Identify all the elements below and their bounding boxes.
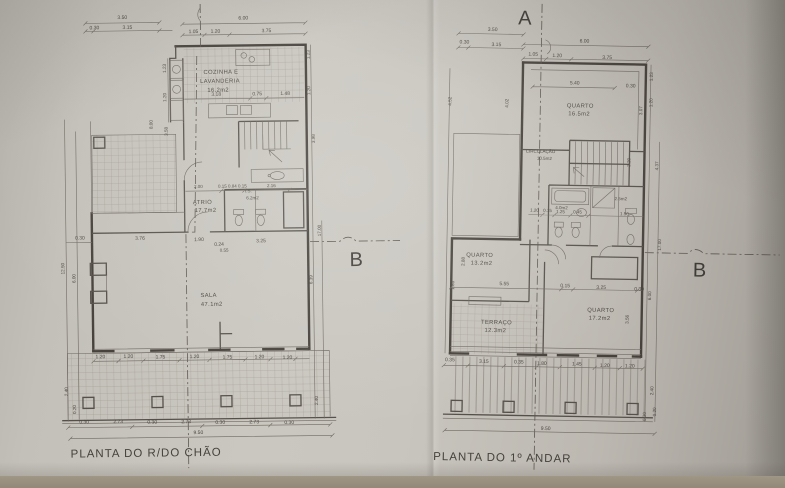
svg-text:9.50: 9.50 <box>541 426 551 432</box>
svg-text:2.16: 2.16 <box>267 183 276 188</box>
svg-text:4.02: 4.02 <box>504 98 509 107</box>
room-label-atrio: ATRIO <box>193 200 212 206</box>
svg-text:0.55: 0.55 <box>220 248 229 253</box>
svg-text:0.30: 0.30 <box>634 286 644 292</box>
svg-text:13.2m2: 13.2m2 <box>471 261 493 267</box>
svg-text:0.30: 0.30 <box>626 83 636 89</box>
svg-text:0.30: 0.30 <box>90 25 100 31</box>
svg-text:1.05: 1.05 <box>528 52 538 58</box>
svg-text:2.20: 2.20 <box>626 157 631 166</box>
svg-text:1.05: 1.05 <box>189 29 199 35</box>
svg-text:6.39: 6.39 <box>308 275 313 284</box>
svg-text:0.30: 0.30 <box>642 412 647 421</box>
svg-text:1.20: 1.20 <box>530 208 539 213</box>
svg-text:4.37: 4.37 <box>654 161 659 170</box>
svg-text:2.73: 2.73 <box>113 419 123 425</box>
room-label-sala: SALA <box>200 293 217 299</box>
svg-text:3.75: 3.75 <box>262 28 272 34</box>
svg-text:0.30: 0.30 <box>460 39 470 45</box>
left-plan-stairs <box>239 121 300 168</box>
svg-text:0.30: 0.30 <box>284 420 294 426</box>
svg-text:0.30: 0.30 <box>75 235 85 241</box>
floorplan-drawing: B 3.50 0.30 3.15 6.00 1.05 1.20 3.75 <box>0 0 785 488</box>
svg-text:5.55: 5.55 <box>499 281 509 287</box>
svg-text:1.20: 1.20 <box>306 86 311 95</box>
svg-text:0.75: 0.75 <box>252 91 262 97</box>
svg-text:3.25: 3.25 <box>596 285 606 291</box>
svg-text:0.35: 0.35 <box>445 357 455 363</box>
svg-text:0.15: 0.15 <box>543 208 552 213</box>
room-label-kitchen: COZINHA E <box>204 70 239 76</box>
svg-text:3.15: 3.15 <box>479 359 489 365</box>
svg-text:17.00: 17.00 <box>317 224 322 236</box>
svg-text:47.1m2: 47.1m2 <box>201 302 223 308</box>
svg-text:0.35: 0.35 <box>514 359 524 365</box>
svg-text:3.50: 3.50 <box>488 27 498 33</box>
svg-text:1.20: 1.20 <box>96 354 106 360</box>
svg-text:3.15: 3.15 <box>491 42 501 48</box>
right-plan: A B 3.50 0.30 3.15 6.00 1.05 1.20 3.75 5… <box>433 2 784 474</box>
left-plan-title: PLANTA DO R/DO CHÃO <box>71 446 222 461</box>
svg-text:0.30: 0.30 <box>79 419 89 425</box>
svg-text:1.50: 1.50 <box>620 211 629 216</box>
svg-text:1.90: 1.90 <box>194 237 204 243</box>
svg-text:2.40: 2.40 <box>314 396 319 405</box>
svg-text:3.98: 3.98 <box>311 134 316 143</box>
svg-text:5.40: 5.40 <box>570 80 580 86</box>
svg-text:0.45: 0.45 <box>573 209 582 214</box>
svg-text:2.73: 2.73 <box>249 419 259 425</box>
svg-text:1.23: 1.23 <box>306 50 311 59</box>
svg-text:0.15 0.84 0.15: 0.15 0.84 0.15 <box>218 183 247 188</box>
svg-text:2.73: 2.73 <box>181 419 191 425</box>
svg-text:1.75: 1.75 <box>156 354 166 360</box>
svg-text:1.20: 1.20 <box>283 355 293 361</box>
svg-text:1.20: 1.20 <box>255 354 265 360</box>
svg-text:12.3m2: 12.3m2 <box>484 328 506 334</box>
svg-text:3.07: 3.07 <box>638 106 643 115</box>
svg-text:1.20: 1.20 <box>124 354 134 360</box>
svg-text:0.30: 0.30 <box>215 420 225 426</box>
svg-text:1.45: 1.45 <box>572 361 582 367</box>
right-plan-floor-patterns <box>449 133 650 415</box>
svg-text:8.00: 8.00 <box>149 120 154 129</box>
svg-text:12.50: 12.50 <box>60 262 65 274</box>
svg-text:10.5m2: 10.5m2 <box>537 156 553 161</box>
room-label-quarto-1: QUARTO <box>567 103 594 109</box>
svg-text:1.20: 1.20 <box>552 53 562 59</box>
svg-text:LAVANDERIA: LAVANDERIA <box>200 78 240 84</box>
left-plan: B 3.50 0.30 3.15 6.00 1.05 1.20 3.75 <box>57 2 403 470</box>
svg-text:4.52: 4.52 <box>447 96 452 105</box>
svg-text:1.75: 1.75 <box>223 355 233 361</box>
svg-text:1.20: 1.20 <box>648 98 653 107</box>
left-plan-bathroom <box>224 169 308 232</box>
svg-text:6.00: 6.00 <box>580 38 590 44</box>
svg-text:1.20: 1.20 <box>600 363 610 369</box>
svg-text:6.00: 6.00 <box>238 15 248 21</box>
svg-text:1.20: 1.20 <box>190 354 200 360</box>
svg-text:1.20: 1.20 <box>211 29 221 35</box>
svg-text:16.5m2: 16.5m2 <box>568 111 590 117</box>
svg-text:2.40: 2.40 <box>64 387 69 396</box>
svg-text:6.2m2: 6.2m2 <box>246 195 259 200</box>
section-marker-a: A <box>518 7 532 29</box>
right-plan-title: PLANTA DO 1º ANDAR <box>433 451 572 465</box>
room-label-is2: 2.5m2 <box>614 196 627 201</box>
svg-text:3.56: 3.56 <box>625 314 630 323</box>
svg-text:3.75: 3.75 <box>602 55 612 61</box>
svg-text:16.2m2: 16.2m2 <box>207 88 229 94</box>
svg-text:1.30: 1.30 <box>450 280 455 289</box>
svg-text:9.50: 9.50 <box>193 430 203 436</box>
svg-text:2.40: 2.40 <box>649 386 654 395</box>
svg-text:2.88: 2.88 <box>461 257 466 266</box>
svg-text:1.20: 1.20 <box>625 363 635 369</box>
svg-text:17.7m2: 17.7m2 <box>195 208 217 214</box>
svg-text:1.48: 1.48 <box>280 91 290 97</box>
svg-text:3.76: 3.76 <box>135 236 145 242</box>
svg-text:6.00: 6.00 <box>71 274 76 283</box>
section-marker-b-right: B <box>693 259 707 281</box>
svg-text:17.2m2: 17.2m2 <box>589 316 611 322</box>
svg-text:1.80: 1.80 <box>537 361 547 367</box>
svg-text:1.23: 1.23 <box>649 72 654 81</box>
svg-text:0.20: 0.20 <box>652 407 657 416</box>
section-marker-b-left: B <box>349 249 363 271</box>
svg-text:2.00: 2.00 <box>194 184 203 189</box>
right-plan-stairs <box>569 140 630 186</box>
svg-text:3.25: 3.25 <box>256 238 266 244</box>
svg-text:3.58: 3.58 <box>164 126 169 135</box>
room-label-quarto-3: QUARTO <box>587 308 614 314</box>
svg-text:6.00: 6.00 <box>647 291 652 300</box>
svg-text:0.30: 0.30 <box>147 420 157 426</box>
svg-text:17.00: 17.00 <box>657 239 662 251</box>
svg-text:0.15: 0.15 <box>560 283 570 289</box>
room-label-is: I.S. <box>245 188 252 193</box>
room-label-quarto-2: QUARTO <box>466 253 493 259</box>
svg-text:0.20: 0.20 <box>72 405 77 414</box>
svg-text:3.50: 3.50 <box>117 15 127 21</box>
room-label-is1: 4.0m2 <box>555 205 568 210</box>
svg-text:3.15: 3.15 <box>122 25 132 31</box>
room-label-circulacao: CIRCULAÇÃO <box>526 148 556 155</box>
room-label-terraco: TERRAÇO <box>481 320 512 327</box>
svg-text:1.20: 1.20 <box>162 92 167 101</box>
svg-text:1.23: 1.23 <box>162 63 167 72</box>
